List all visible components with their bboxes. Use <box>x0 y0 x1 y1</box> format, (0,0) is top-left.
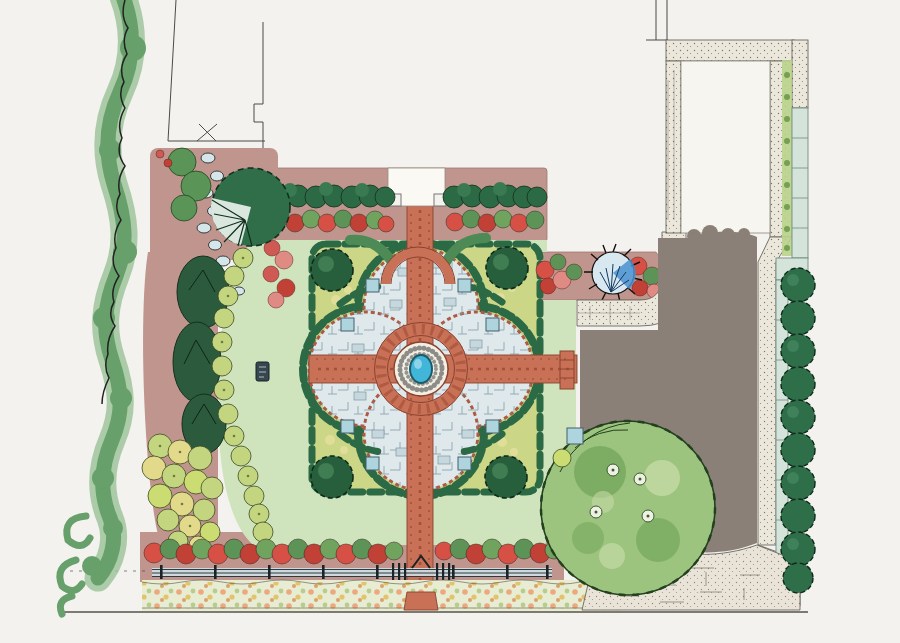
brick-path-gate-flare <box>404 592 438 610</box>
artist-seal <box>256 362 269 381</box>
garden-plan-drawing <box>0 0 900 643</box>
specimen-shade-tree <box>541 421 715 595</box>
topiary <box>485 456 527 498</box>
garden-bench-east <box>567 428 583 444</box>
fan-palm-tree <box>211 168 290 246</box>
garden-plan-canvas <box>0 0 900 643</box>
south-border <box>70 539 620 611</box>
topiary <box>486 247 528 289</box>
court-floor <box>681 61 770 233</box>
meadow-flowers <box>142 582 620 609</box>
topiary <box>311 249 353 291</box>
topiary <box>311 456 353 498</box>
shrub-accent-east <box>553 449 571 467</box>
fountain-pool <box>410 355 432 383</box>
pool-highlight <box>414 359 422 369</box>
